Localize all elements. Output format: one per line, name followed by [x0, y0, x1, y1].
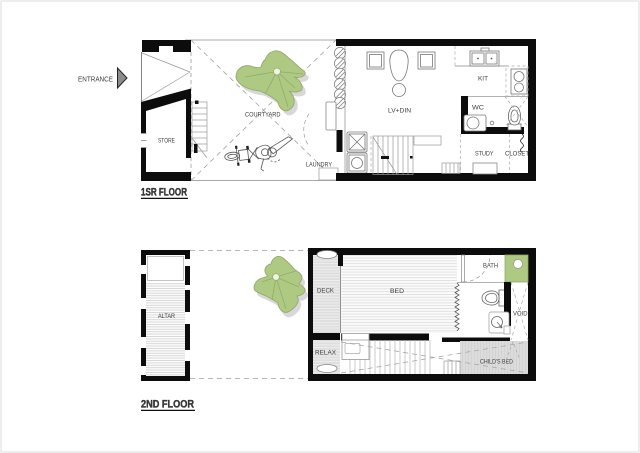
svg-text:LAUNDRY: LAUNDRY	[306, 162, 333, 169]
svg-text:KIT: KIT	[478, 76, 488, 83]
svg-text:2ND FLOOR: 2ND FLOOR	[141, 399, 194, 411]
svg-text:STUDY: STUDY	[475, 151, 494, 158]
svg-text:CHILD'S BED: CHILD'S BED	[480, 359, 513, 366]
svg-text:BED: BED	[390, 288, 404, 295]
svg-text:CLOSET: CLOSET	[505, 151, 529, 158]
svg-text:BATH: BATH	[483, 263, 498, 270]
svg-text:COURTYARD: COURTYARD	[245, 112, 281, 119]
svg-text:ENTRANCE: ENTRANCE	[78, 77, 113, 84]
svg-text:STORE: STORE	[158, 138, 175, 145]
svg-text:LV+DIN: LV+DIN	[388, 108, 411, 115]
svg-text:ALTAR: ALTAR	[158, 313, 175, 320]
svg-text:WC: WC	[472, 105, 484, 112]
svg-text:1SR FLOOR: 1SR FLOOR	[141, 187, 187, 199]
svg-text:DECK: DECK	[317, 288, 335, 295]
svg-text:RELAX: RELAX	[315, 350, 337, 357]
